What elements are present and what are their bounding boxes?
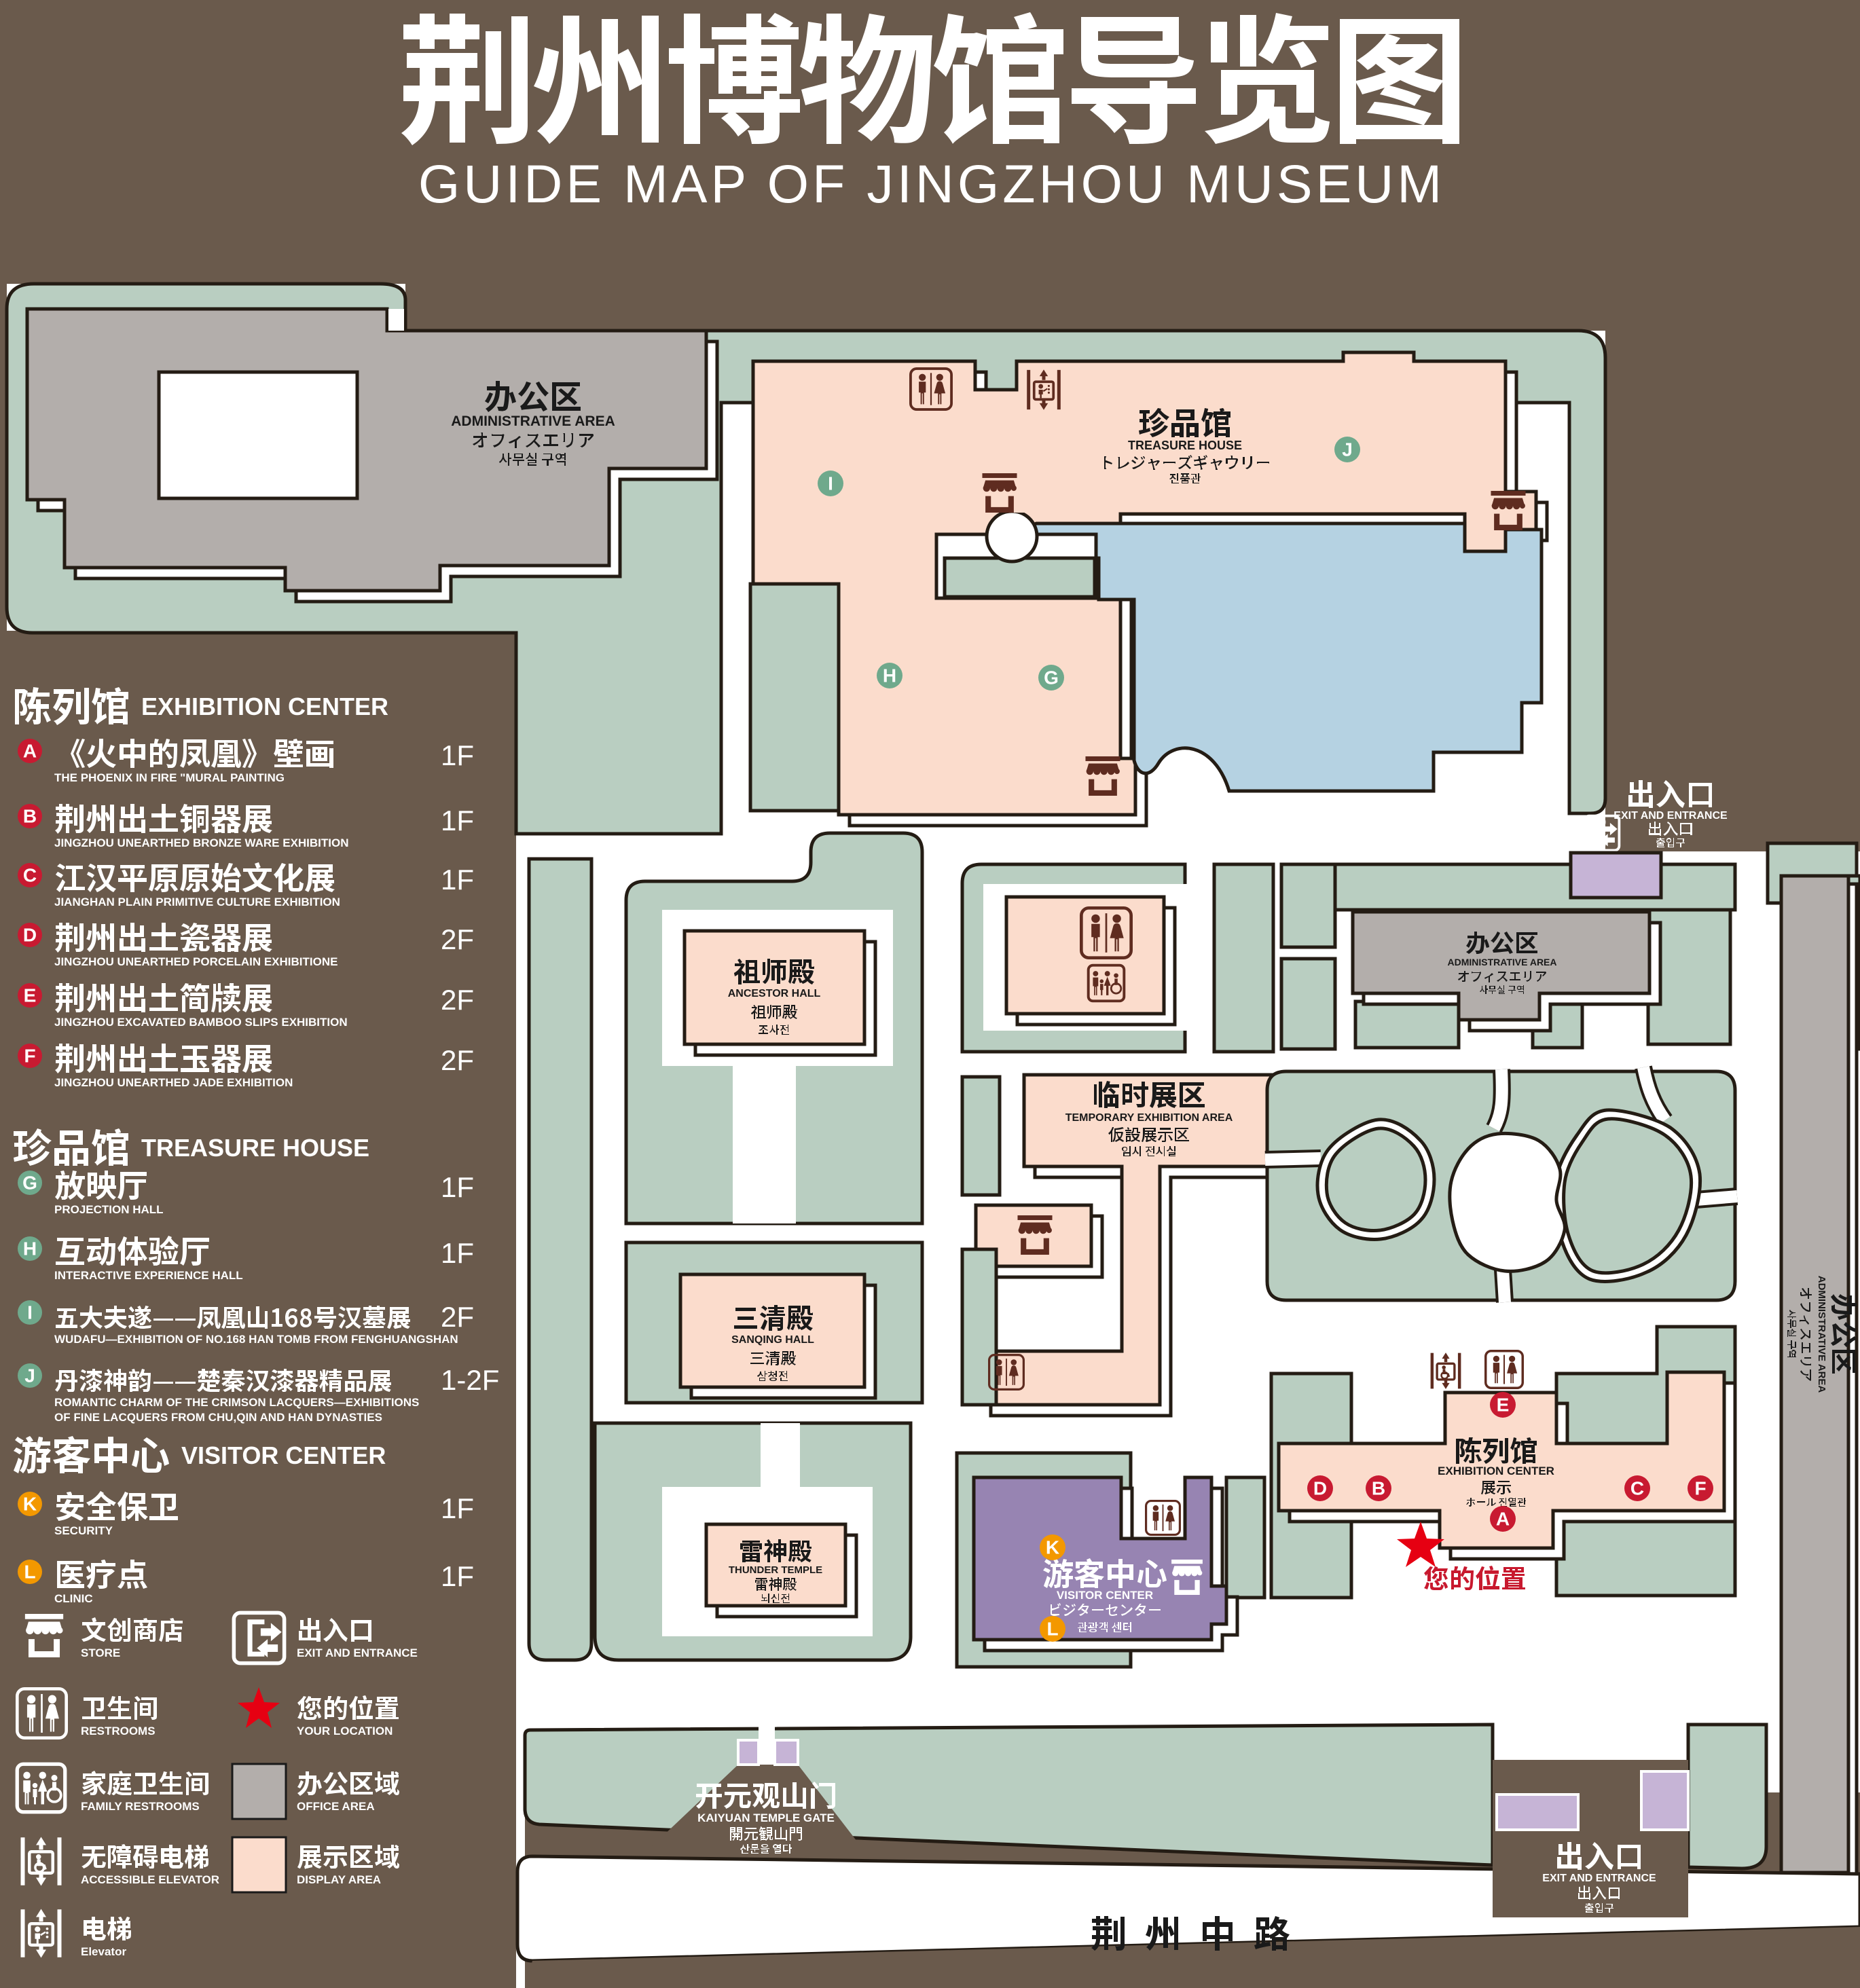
svg-text:D: D [23,925,37,946]
svg-text:JIANGHAN PLAIN PRIMITIVE CULTU: JIANGHAN PLAIN PRIMITIVE CULTURE EXHIBIT… [54,896,340,908]
svg-text:1F: 1F [441,1171,474,1203]
svg-text:J: J [24,1365,35,1386]
svg-text:K: K [1046,1537,1059,1558]
svg-text:2F: 2F [441,923,474,955]
svg-text:F: F [1694,1478,1706,1499]
svg-text:ACCESSIBLE ELEVATOR: ACCESSIBLE ELEVATOR [81,1873,219,1886]
svg-text:A: A [23,741,37,762]
svg-text:YOUR LOCATION: YOUR LOCATION [297,1725,393,1737]
svg-text:1F: 1F [441,1492,474,1524]
svg-text:RESTROOMS: RESTROOMS [81,1725,156,1737]
svg-text:JINGZHOU EXCAVATED BAMBOO SLIP: JINGZHOU EXCAVATED BAMBOO SLIPS EXHIBITI… [54,1016,348,1029]
svg-text:TREASURE HOUSE: TREASURE HOUSE [141,1134,369,1162]
svg-text:ADMINISTRATIVE AREA: ADMINISTRATIVE AREA [1816,1276,1827,1393]
svg-text:SANQING HALL: SANQING HALL [731,1334,814,1346]
svg-text:K: K [23,1494,37,1515]
svg-text:1F: 1F [441,805,474,836]
svg-text:ADMINISTRATIVE AREA: ADMINISTRATIVE AREA [451,413,615,429]
svg-text:L: L [1046,1619,1058,1640]
svg-text:SECURITY: SECURITY [54,1524,113,1537]
svg-text:I: I [27,1302,33,1323]
svg-text:DISPLAY AREA: DISPLAY AREA [297,1873,381,1886]
svg-text:TEMPORARY EXHIBITION AREA: TEMPORARY EXHIBITION AREA [1065,1112,1233,1124]
svg-text:D: D [1313,1478,1327,1499]
svg-text:ANCESTOR HALL: ANCESTOR HALL [728,988,821,999]
svg-text:I: I [828,473,833,494]
svg-text:H: H [23,1238,37,1259]
svg-text:B: B [23,806,37,827]
svg-text:CLINIC: CLINIC [54,1592,93,1605]
svg-text:VISITOR CENTER: VISITOR CENTER [181,1441,386,1469]
svg-text:G: G [1044,667,1059,688]
svg-text:EXHIBITION CENTER: EXHIBITION CENTER [1438,1465,1554,1477]
svg-text:1F: 1F [441,1560,474,1592]
svg-text:STORE: STORE [81,1646,120,1659]
svg-text:2F: 2F [441,1044,474,1076]
svg-text:1-2F: 1-2F [441,1364,499,1396]
svg-text:ROMANTIC CHARM OF THE CRIMSON: ROMANTIC CHARM OF THE CRIMSON LACQUERS—E… [54,1396,419,1409]
svg-text:J: J [1342,439,1353,460]
svg-text:E: E [24,985,37,1006]
svg-text:GUIDE MAP OF JINGZHOU MUSEUM: GUIDE MAP OF JINGZHOU MUSEUM [418,153,1445,214]
svg-text:C: C [23,865,37,886]
svg-text:EXHIBITION CENTER: EXHIBITION CENTER [141,693,388,720]
svg-text:G: G [22,1173,37,1194]
svg-text:Elevator: Elevator [81,1945,126,1958]
svg-text:VISITOR CENTER: VISITOR CENTER [1057,1589,1153,1602]
svg-text:EXIT AND ENTRANCE: EXIT AND ENTRANCE [1542,1873,1656,1884]
svg-text:JINGZHOU UNEARTHED JADE EXHIBI: JINGZHOU UNEARTHED JADE EXHIBITION [54,1076,293,1089]
svg-text:WUDAFU—EXHIBITION OF NO.168 HA: WUDAFU—EXHIBITION OF NO.168 HAN TOMB FRO… [54,1333,458,1346]
svg-text:INTERACTIVE EXPERIENCE HALL: INTERACTIVE EXPERIENCE HALL [54,1269,243,1282]
svg-text:1F: 1F [441,1237,474,1269]
svg-text:F: F [24,1046,35,1067]
svg-text:JINGZHOU UNEARTHED PORCELAIN E: JINGZHOU UNEARTHED PORCELAIN EXHIBITIONE [54,955,338,968]
svg-text:1F: 1F [441,864,474,896]
svg-text:E: E [1497,1395,1510,1416]
svg-text:1F: 1F [441,739,474,771]
svg-text:OF FINE LACQUERS FROM CHU,QIN: OF FINE LACQUERS FROM CHU,QIN AND HAN DY… [54,1411,382,1424]
svg-text:2F: 2F [441,1301,474,1333]
svg-text:OFFICE AREA: OFFICE AREA [297,1800,375,1813]
svg-text:ADMINISTRATIVE AREA: ADMINISTRATIVE AREA [1448,957,1557,968]
svg-text:EXIT AND ENTRANCE: EXIT AND ENTRANCE [297,1646,418,1659]
svg-text:B: B [1372,1478,1385,1499]
svg-text:L: L [24,1562,35,1583]
svg-text:H: H [883,665,896,686]
svg-text:THE PHOENIX IN FIRE "MURAL PAI: THE PHOENIX IN FIRE "MURAL PAINTING [54,771,285,784]
svg-text:2F: 2F [441,984,474,1016]
svg-text:PROJECTION HALL: PROJECTION HALL [54,1203,164,1216]
svg-text:THUNDER TEMPLE: THUNDER TEMPLE [729,1564,822,1576]
svg-text:FAMILY RESTROOMS: FAMILY RESTROOMS [81,1800,200,1813]
svg-text:EXIT AND ENTRANCE: EXIT AND ENTRANCE [1613,810,1728,822]
svg-text:JINGZHOU UNEARTHED BRONZE WARE: JINGZHOU UNEARTHED BRONZE WARE EXHIBITIO… [54,836,349,849]
svg-text:KAIYUAN TEMPLE GATE: KAIYUAN TEMPLE GATE [697,1811,835,1824]
svg-text:TREASURE HOUSE: TREASURE HOUSE [1128,439,1242,452]
svg-text:A: A [1496,1509,1510,1530]
svg-text:C: C [1630,1478,1644,1499]
